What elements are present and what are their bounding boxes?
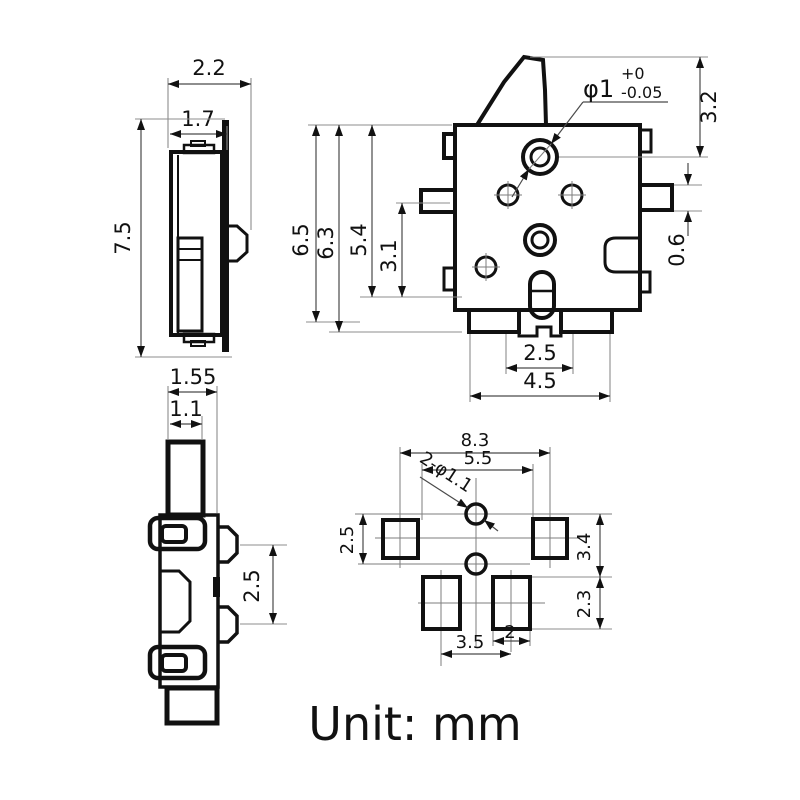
footprint-view: 8.3 5.5 2-φ1.1 2.5 3.4 2.3 3.5 2	[337, 430, 612, 666]
lever	[477, 57, 546, 125]
right-tab-bottom	[640, 272, 650, 292]
top-tab-step	[191, 141, 205, 146]
dim-hole-tol-minus: -0.05	[621, 83, 662, 102]
dim-height-total: 7.5	[111, 221, 135, 254]
hook-terminal-bottom-inner	[162, 655, 186, 671]
dim-height-d: 3.1	[377, 239, 401, 272]
small-hole-3	[472, 253, 500, 281]
dim-hole-tol-plus: +0	[621, 64, 645, 83]
middle-indent	[160, 571, 190, 632]
side-bump-bottom	[219, 607, 237, 642]
dim-depth-outer: 2.2	[192, 56, 225, 80]
bottom-plate	[167, 688, 217, 723]
dim-lower-height: 2.3	[574, 590, 595, 619]
front-view: φ1 +0 -0.05 3.2 0.6 6.5 6.3 5.4 3.1 2.5	[289, 57, 721, 402]
dim-pad-span-inner: 5.5	[464, 448, 493, 469]
inner-block	[178, 238, 202, 331]
dim-bump-pitch: 2.5	[240, 569, 264, 602]
side-bump-top	[219, 527, 237, 562]
top-plate	[168, 442, 203, 515]
dim-bottom-pad-pitch: 3.5	[456, 632, 485, 653]
dim-hole-dia: φ1	[583, 75, 614, 103]
center-hole-outer	[525, 225, 555, 255]
side-small-tab	[213, 577, 220, 597]
side-actuator-bump	[229, 226, 247, 261]
hook-terminal-top-inner	[162, 526, 186, 542]
left-foot	[469, 310, 519, 332]
unit-label: Unit: mm	[308, 697, 521, 751]
bottom-tab-step	[191, 341, 205, 346]
left-tab-top	[444, 134, 455, 158]
dim-terminal-height: 0.6	[665, 233, 689, 266]
dim-height-a: 6.5	[289, 223, 313, 256]
right-terminal	[640, 185, 672, 210]
dim-upper-height: 3.4	[574, 533, 595, 562]
dim-lever-to-hole: 3.2	[697, 90, 721, 123]
dim-height-c: 5.4	[347, 223, 371, 256]
dim-feet-span-outer: 4.5	[523, 369, 556, 393]
switch-dimension-drawing: 2.2 1.7 7.5	[0, 0, 800, 800]
dim-bottom-pad-width: 2	[504, 622, 515, 643]
dim-feet-span-inner: 2.5	[523, 341, 556, 365]
dim-hole-pitch: 2.5	[337, 526, 358, 555]
small-hole-1	[494, 181, 522, 209]
right-notch	[605, 238, 640, 272]
side-view: 2.2 1.7 7.5	[111, 56, 251, 357]
center-hole-inner	[532, 232, 548, 248]
technical-drawing-page: 2.2 1.7 7.5	[0, 0, 800, 800]
right-foot	[561, 310, 612, 332]
small-hole-2	[558, 181, 586, 209]
dim-plate-inner: 1.1	[169, 397, 202, 421]
dim-plate-outer: 1.55	[170, 365, 217, 389]
dim-height-b: 6.3	[314, 226, 338, 259]
center-foot-notch	[519, 310, 561, 336]
left-terminal	[421, 190, 455, 212]
rear-side-view: 1.55 1.1 2.5	[150, 365, 287, 723]
